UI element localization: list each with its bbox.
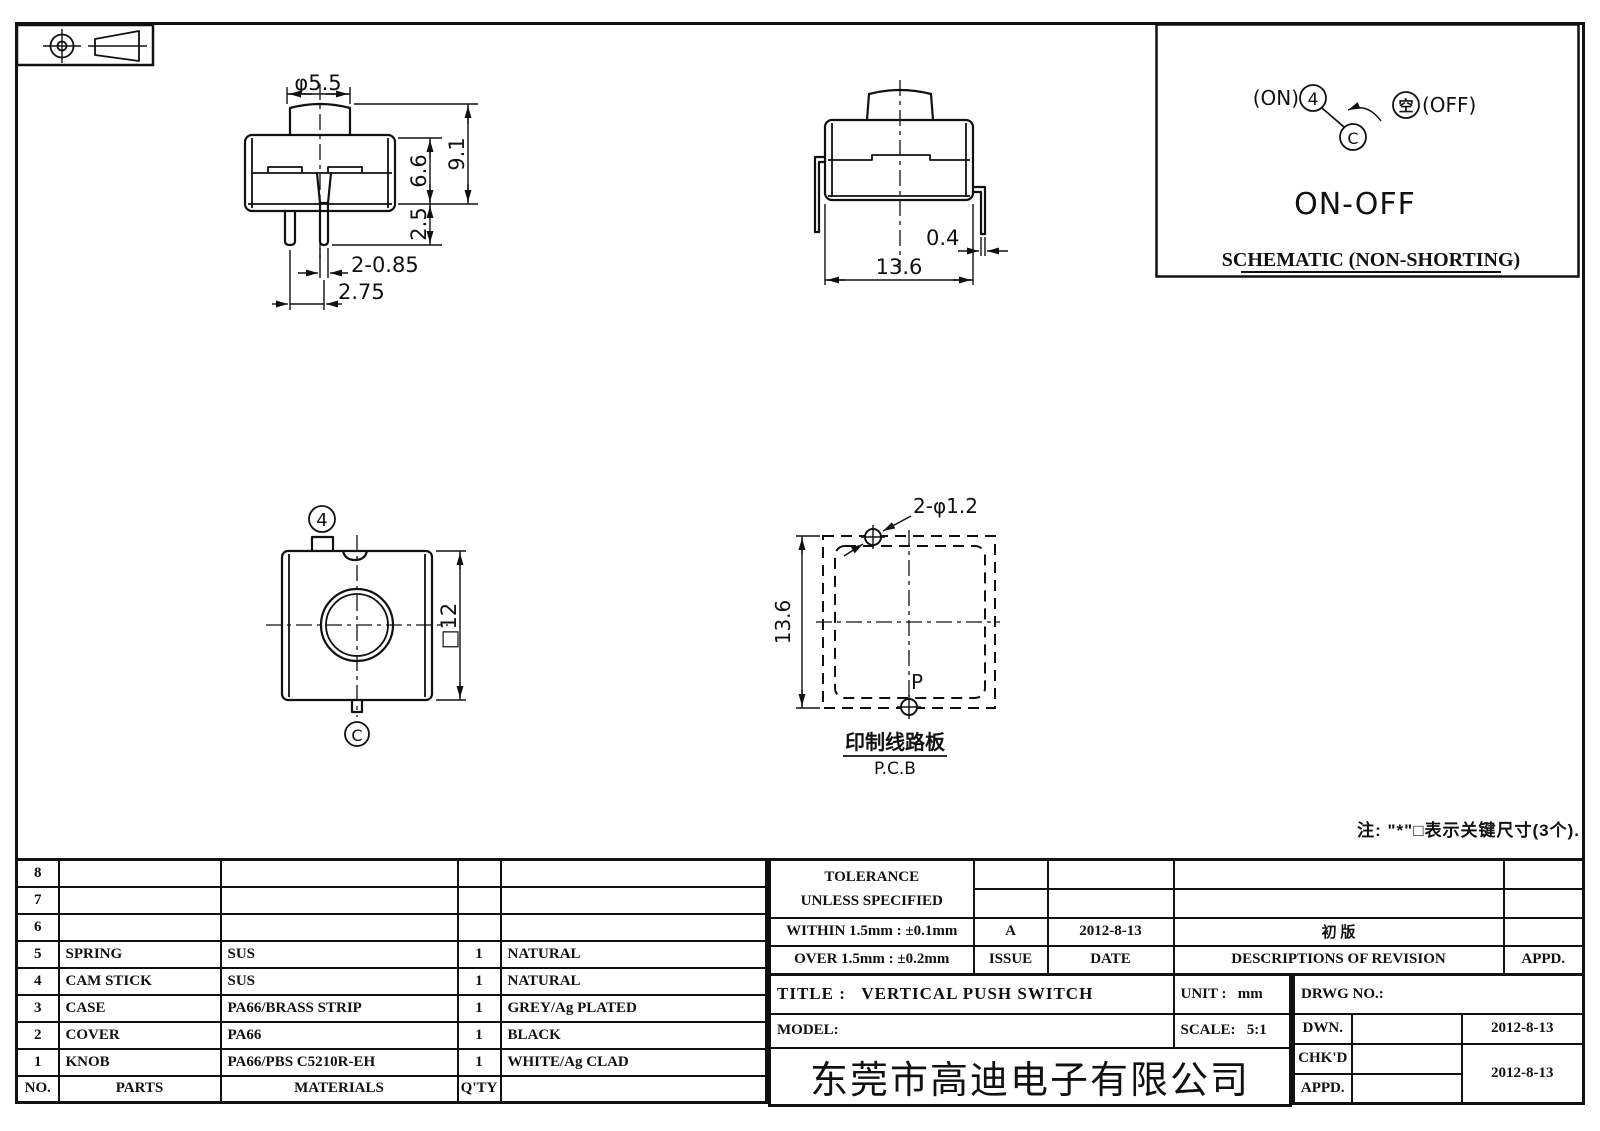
pcb-caption-cn: 印制线路板 [845, 730, 946, 754]
dim-body-height: 6.6 [407, 154, 431, 187]
dim-body-width: 13.6 [876, 255, 923, 279]
unit-label: UNIT : [1181, 986, 1227, 1002]
symbol-box-border [17, 25, 153, 65]
dim-pcb-height: 13.6 [771, 600, 795, 645]
pcb-caption-en: P.C.B [874, 759, 916, 779]
col-parts: PARTS [59, 1076, 221, 1103]
drawing-sheet: φ5.5 9.1 6.6 2.5 2-0.85 2.75 [0, 0, 1600, 1131]
tolerance-line2: UNLESS SPECIFIED [777, 889, 967, 913]
key-dimension-note: 注: "*"□表示关键尺寸(3个). [1040, 816, 1580, 841]
center-pin [320, 203, 328, 245]
left-pin [285, 211, 295, 245]
rotation-arrow [1348, 108, 1381, 121]
empty-terminal-label: 空 [1398, 97, 1413, 115]
notch [343, 551, 367, 560]
on-label: (ON) [1253, 86, 1299, 110]
dwn-signature [1352, 1014, 1462, 1044]
table-row: 7 [17, 887, 767, 914]
date-value: 2012-8-13 [1048, 918, 1174, 946]
table-row: 4CAM STICKSUS1NATURAL [17, 968, 767, 995]
scale-cell: SCALE: 5:1 [1174, 1014, 1291, 1048]
right-leg [973, 187, 985, 234]
revision-header: DESCRIPTIONS OF REVISION [1174, 946, 1504, 975]
table-row: 5SPRINGSUS1NATURAL [17, 941, 767, 968]
chkd-label: CHK'D [1294, 1044, 1352, 1074]
date-label: DATE [1048, 946, 1174, 975]
drwg-no-cell: DRWG NO.: [1294, 975, 1584, 1014]
top-view-drawing: 4 C □12 [250, 480, 480, 770]
projection-symbol [17, 25, 155, 67]
switch-arm [1322, 108, 1344, 127]
dim-knob-diameter: φ5.5 [294, 71, 341, 95]
model-label: MODEL: [777, 1022, 839, 1038]
table-row: 6 [17, 914, 767, 941]
chkd-date: 2012-8-13 [1462, 1044, 1584, 1104]
point-p-label: P [911, 670, 923, 694]
revision-block: TOLERANCE UNLESS SPECIFIED WITHIN 1.5mm … [768, 858, 1585, 976]
dim-total-height: 9.1 [445, 137, 469, 170]
dwn-date: 2012-8-13 [1462, 1014, 1584, 1044]
col-qty: Q'TY [458, 1076, 501, 1103]
terminal-4-label: 4 [316, 510, 327, 531]
table-row: 8 [17, 860, 767, 887]
tolerance-over: OVER 1.5mm : ±0.2mm [770, 946, 974, 975]
schematic-caption: SCHEMATIC (NON-SHORTING) [1222, 249, 1520, 271]
parts-table: 8 7 6 5SPRINGSUS1NATURAL 4CAM STICKSUS1N… [15, 858, 768, 1104]
table-header-row: NO.PARTSMATERIALSQ'TY [17, 1076, 767, 1103]
table-row: 1KNOBPA66/PBS C5210R-EH1WHITE/Ag CLAD [17, 1049, 767, 1076]
tolerance-header: TOLERANCE UNLESS SPECIFIED [770, 860, 974, 918]
terminal-c-label: C [351, 726, 362, 745]
unit-value: mm [1238, 986, 1263, 1002]
scale-label: SCALE: [1181, 1022, 1236, 1038]
col-materials: MATERIALS [221, 1076, 458, 1103]
table-row: 3CASEPA66/BRASS STRIP1GREY/Ag PLATED [17, 995, 767, 1022]
off-label: (OFF) [1422, 93, 1476, 117]
front-view-drawing: φ5.5 9.1 6.6 2.5 2-0.85 2.75 [180, 60, 500, 320]
dim-square-size: □12 [437, 603, 461, 650]
title-label: TITLE : [777, 984, 846, 1003]
col-no: NO. [17, 1076, 59, 1103]
tolerance-line1: TOLERANCE [777, 865, 967, 889]
dim-pin-length: 2.5 [407, 207, 431, 240]
schematic-border [1157, 25, 1579, 277]
issue-label: ISSUE [974, 946, 1048, 975]
table-row: 2COVERPA661BLACK [17, 1022, 767, 1049]
dim-pin-width: 2-0.85 [351, 253, 419, 277]
dim-pin-thickness: 0.4 [926, 226, 959, 250]
appd-header: APPD. [1504, 946, 1584, 975]
model-cell: MODEL: [770, 1014, 1174, 1048]
terminal-4-label: 4 [1308, 90, 1319, 110]
side-view-drawing: 0.4 13.6 [760, 60, 1020, 300]
function-label: ON-OFF [1294, 187, 1416, 222]
pcb-layout-drawing: 2-φ1.2 13.6 P 印制线路板 P.C.B [760, 480, 1000, 780]
dim-pin-pitch: 2.75 [338, 280, 385, 304]
appd-signature [1352, 1074, 1462, 1104]
company-name: 东莞市高迪电子有限公司 [770, 1048, 1291, 1106]
title-block-left: TITLE : VERTICAL PUSH SWITCH UNIT : mm M… [768, 973, 1292, 1107]
top-tab [312, 537, 333, 551]
center-pin-taper [317, 173, 331, 203]
unit-cell: UNIT : mm [1174, 975, 1291, 1014]
terminal-c-label: C [1347, 129, 1358, 148]
schematic-box: (ON) 4 C 空 (OFF) ON-OFF SCHEMATIC (NON-S… [1155, 23, 1581, 279]
tolerance-within: WITHIN 1.5mm : ±0.1mm [770, 918, 974, 946]
dwn-label: DWN. [1294, 1014, 1352, 1044]
title-cell: TITLE : VERTICAL PUSH SWITCH [770, 975, 1174, 1014]
issue-value: A [974, 918, 1048, 946]
appd-label: APPD. [1294, 1074, 1352, 1104]
scale-value: 5:1 [1247, 1022, 1267, 1038]
revision-description: 初 版 [1174, 918, 1504, 946]
dim-hole-diameter: 2-φ1.2 [913, 494, 978, 518]
title-block-right: DRWG NO.: DWN. 2012-8-13 CHK'D 2012-8-13… [1292, 973, 1585, 1105]
chkd-signature [1352, 1044, 1462, 1074]
title-value: VERTICAL PUSH SWITCH [861, 984, 1093, 1003]
